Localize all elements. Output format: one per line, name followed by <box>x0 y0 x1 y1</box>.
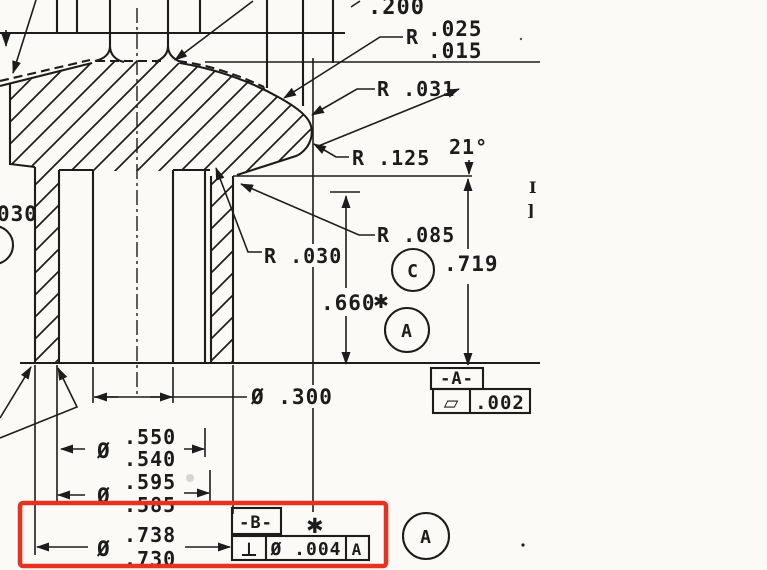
datum-b-flag: -B- <box>232 508 281 534</box>
flatness-value: .002 <box>475 392 525 414</box>
perpendicularity-value: Ø .004 <box>269 539 341 560</box>
feature-control-frame-perpendicularity: ⊥ Ø .004 A <box>232 536 369 561</box>
asterisk-fcf: ✱ <box>306 514 324 538</box>
datum-balloon-a-lower: A <box>403 513 449 559</box>
balloon-c-label: C <box>407 261 419 282</box>
dim-angle-label: 21° <box>449 135 488 159</box>
perpendicularity-icon: ⊥ <box>240 539 257 561</box>
asterisk-660: ✱ <box>373 291 389 313</box>
dim-r025-lower: .015 <box>428 39 483 63</box>
datum-balloon-a-middle: A <box>385 308 429 352</box>
dia550-phi: Ø <box>96 439 111 463</box>
dim-738-upper: .738 <box>124 523 176 547</box>
datum-balloon-c: C <box>392 249 434 291</box>
dim-660-label: .660 <box>321 291 376 315</box>
dim-r031-label: R .031 <box>377 77 455 101</box>
edge-mark-bottom: ] <box>527 201 535 220</box>
dim-719-label: .719 <box>444 252 499 276</box>
perpendicularity-datum-ref: A <box>352 540 363 559</box>
balloon-a-mid-label: A <box>401 321 413 342</box>
dim-dia300-label: Ø .300 <box>250 385 333 409</box>
scanned-engineering-drawing: .200 R .025 .015 R .031 21° R .125 R .08… <box>0 0 767 570</box>
dim-200-label: .200 <box>368 0 425 20</box>
section-hatching <box>10 61 312 363</box>
dim-r025-upper: .025 <box>428 17 483 41</box>
balloon-a-low-label: A <box>420 527 432 548</box>
dim-595-upper: .595 <box>124 470 176 494</box>
flatness-icon: ▱ <box>444 392 459 414</box>
datum-a-label: -A- <box>440 369 474 389</box>
dim-550-lower: .540 <box>124 447 176 471</box>
dim-550-upper: .550 <box>124 425 176 449</box>
dim-r030-label: R .030 <box>264 244 342 268</box>
dim-r125-label: R .125 <box>352 146 430 170</box>
dia738-phi: Ø <box>96 537 111 561</box>
edge-mark-top: I <box>529 178 536 197</box>
dim-030-clipped-label: 030 <box>0 202 38 226</box>
dim-r025-letter: R <box>406 25 419 49</box>
datum-a-flag: -A- <box>431 368 483 389</box>
section-view-svg: .200 R .025 .015 R .031 21° R .125 R .08… <box>0 0 767 570</box>
dim-r085-label: R .085 <box>377 223 455 247</box>
clipped-balloon-left-edge <box>0 226 13 264</box>
datum-b-label: -B- <box>239 513 273 533</box>
feature-control-frame-flatness: ▱ .002 <box>433 389 530 414</box>
